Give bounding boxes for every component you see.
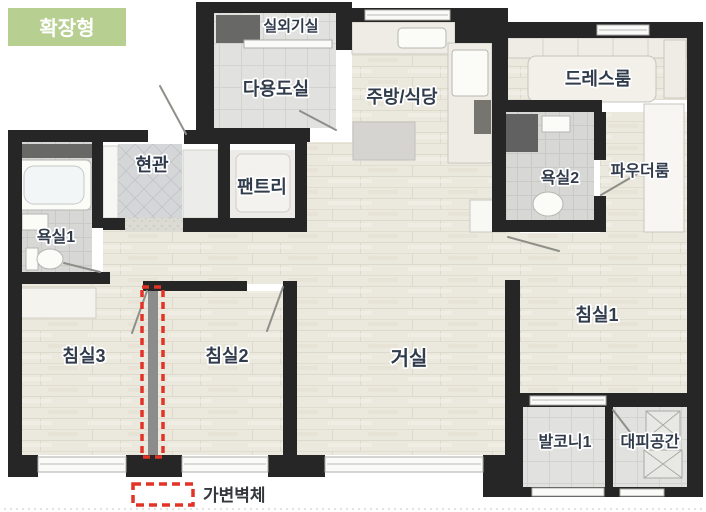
room-label-bathroom2: 욕실2 (541, 169, 579, 187)
balcony-window (532, 488, 604, 496)
room-label-outdoor-unit: 실외기실 (263, 17, 318, 35)
room-label-dress-room: 드레스룸 (565, 69, 631, 89)
floor-living (297, 142, 505, 455)
outdoor-unit-window (244, 40, 332, 48)
floor-plan-svg: 실외기실 다용도실 주방/식당 드레스룸 현관 팬트리 욕실2 파우더룸 욕실1… (0, 0, 706, 512)
bath1-toilet-tank (26, 248, 38, 270)
bath2-toilet (533, 192, 563, 216)
type-badge: 확장형 (8, 8, 126, 46)
entrance-closet (183, 150, 218, 218)
room-label-living-room: 거실 (391, 347, 428, 370)
shoe-closet (103, 146, 118, 218)
room-label-refuge-space: 대피공간 (621, 433, 680, 451)
dress-wardrobe-right (664, 40, 686, 98)
type-badge-label: 확장형 (39, 16, 94, 40)
room-label-bathroom1: 욕실1 (37, 228, 75, 246)
bath1-toilet (37, 249, 63, 269)
kitchen-cooktop (452, 50, 488, 96)
room-label-balcony1: 발코니1 (538, 433, 591, 451)
bath2-sink (542, 116, 570, 132)
room-label-bedroom3: 침실3 (62, 346, 105, 366)
refuge-window (620, 489, 664, 496)
room-label-utility: 다용도실 (243, 79, 309, 99)
floor-plan-page: 실외기실 다용도실 주방/식당 드레스룸 현관 팬트리 욕실2 파우더룸 욕실1… (0, 0, 706, 512)
floor-hallway (103, 228, 305, 284)
bed3-closet (16, 288, 96, 318)
bath2-shaft (506, 114, 538, 152)
dining-island (353, 122, 415, 160)
legend: 가변벽체 (133, 484, 266, 505)
movable-wall (148, 291, 158, 455)
floor-entrance-step (125, 218, 183, 232)
bathtub-inner (24, 166, 84, 204)
legend-movable-wall-swatch (133, 484, 193, 505)
dress-wardrobe-top (508, 38, 687, 58)
ac-unit (216, 15, 260, 43)
floor-bedroom2 (158, 291, 283, 455)
room-label-bedroom1: 침실1 (575, 305, 618, 325)
bath1-window-strip (18, 144, 92, 158)
legend-label: 가변벽체 (203, 486, 266, 505)
room-label-powder-room: 파우더룸 (611, 162, 670, 180)
room-label-kitchen-dining: 주방/식당 (366, 87, 438, 107)
kitchen-sink (398, 28, 446, 48)
room-label-bedroom2: 침실2 (205, 346, 248, 366)
room-label-entrance: 현관 (135, 155, 169, 175)
room-label-pantry: 팬트리 (237, 177, 287, 197)
front-door (160, 86, 186, 134)
bath1-sink (22, 214, 48, 230)
kitchen-fridge (474, 100, 491, 134)
